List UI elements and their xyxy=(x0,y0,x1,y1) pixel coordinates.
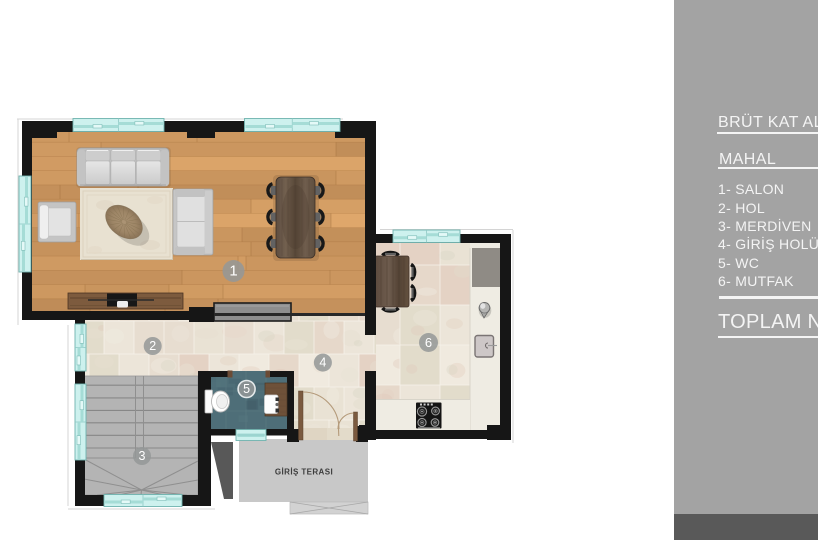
svg-text:3: 3 xyxy=(139,449,146,463)
svg-text:GİRİŞ TERASI: GİRİŞ TERASI xyxy=(275,468,333,477)
svg-text:2: 2 xyxy=(149,339,156,353)
svg-text:4: 4 xyxy=(319,356,326,370)
svg-text:1: 1 xyxy=(229,263,237,280)
svg-text:5: 5 xyxy=(243,382,250,396)
svg-text:6: 6 xyxy=(425,335,432,350)
